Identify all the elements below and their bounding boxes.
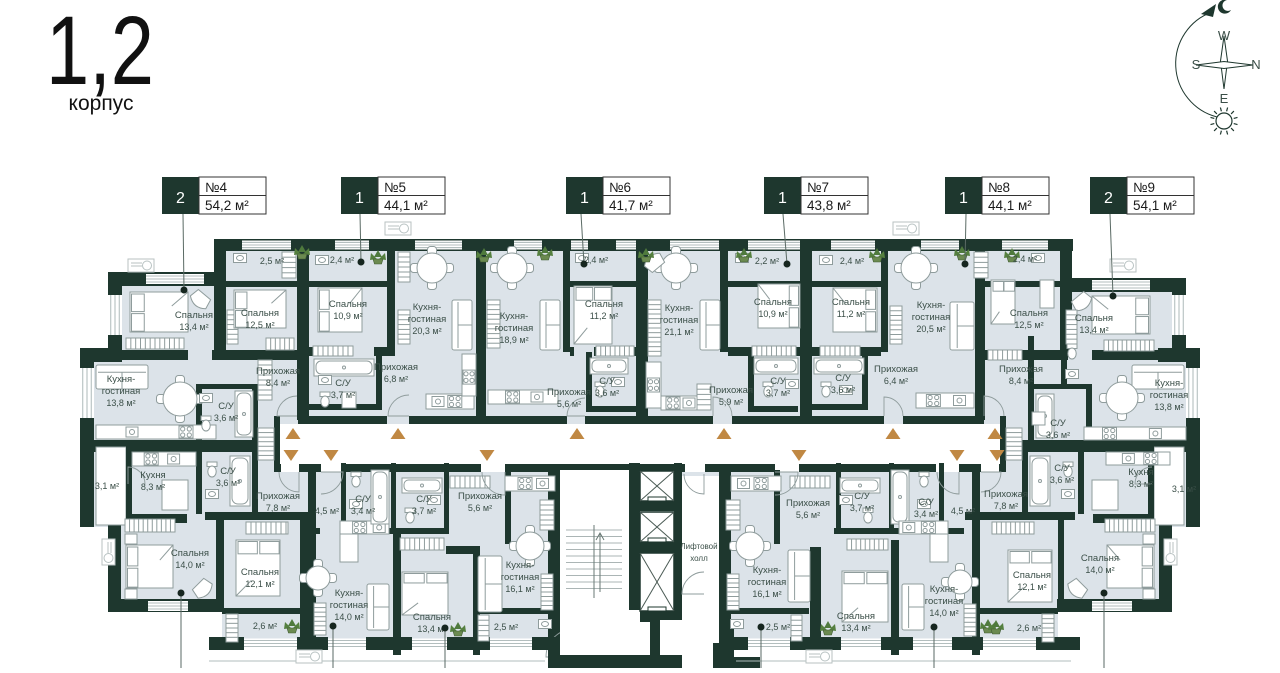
svg-text:54,1 м²: 54,1 м² bbox=[1133, 198, 1177, 213]
svg-text:3,6 м²: 3,6 м² bbox=[214, 413, 238, 423]
svg-text:Прихожая: Прихожая bbox=[984, 489, 1028, 500]
svg-text:1: 1 bbox=[580, 190, 589, 207]
svg-text:13,4 м²: 13,4 м² bbox=[1079, 325, 1108, 335]
svg-text:С/У: С/У bbox=[1050, 418, 1067, 429]
svg-text:18,9 м²: 18,9 м² bbox=[499, 335, 528, 345]
svg-text:С/У: С/У bbox=[335, 378, 352, 389]
svg-text:2,4 м²: 2,4 м² bbox=[330, 255, 354, 265]
svg-text:2: 2 bbox=[1104, 190, 1113, 207]
svg-text:11,2 м²: 11,2 м² bbox=[590, 311, 619, 321]
svg-text:№8: №8 bbox=[988, 180, 1010, 195]
svg-text:3,1 м²: 3,1 м² bbox=[1172, 484, 1196, 494]
svg-text:1,2: 1,2 bbox=[46, 0, 154, 105]
svg-text:Кухня-: Кухня- bbox=[1155, 378, 1184, 389]
svg-text:3,7 м²: 3,7 м² bbox=[766, 388, 790, 398]
svg-text:5,6 м²: 5,6 м² bbox=[796, 510, 820, 520]
svg-text:№9: №9 bbox=[1133, 180, 1155, 195]
svg-text:Кухня-: Кухня- bbox=[335, 588, 364, 599]
svg-text:Кухня-: Кухня- bbox=[753, 565, 782, 576]
svg-text:Спальня: Спальня bbox=[832, 297, 870, 308]
svg-text:Прихожая: Прихожая bbox=[547, 387, 591, 398]
svg-text:Спальня: Спальня bbox=[754, 297, 792, 308]
svg-text:Кухня-: Кухня- bbox=[930, 584, 959, 595]
svg-text:3,6 м²: 3,6 м² bbox=[216, 478, 240, 488]
svg-text:5,9 м²: 5,9 м² bbox=[719, 397, 743, 407]
svg-text:43,8 м²: 43,8 м² bbox=[807, 198, 851, 213]
svg-text:2,6 м²: 2,6 м² bbox=[253, 621, 277, 631]
svg-text:Прихожая: Прихожая bbox=[374, 362, 418, 373]
svg-text:7,8 м²: 7,8 м² bbox=[266, 503, 290, 513]
svg-text:2,4 м²: 2,4 м² bbox=[1013, 254, 1037, 264]
svg-text:Спальня: Спальня bbox=[175, 310, 213, 321]
svg-text:41,7 м²: 41,7 м² bbox=[609, 198, 653, 213]
svg-text:3,7 м²: 3,7 м² bbox=[850, 503, 874, 513]
svg-text:8,4 м²: 8,4 м² bbox=[1009, 376, 1033, 386]
svg-text:С/У: С/У bbox=[770, 376, 787, 387]
svg-text:№7: №7 bbox=[807, 180, 829, 195]
svg-text:Спальня: Спальня bbox=[1075, 313, 1113, 324]
svg-text:Спальня: Спальня bbox=[171, 548, 209, 559]
svg-text:21,1 м²: 21,1 м² bbox=[664, 327, 693, 337]
svg-text:2,5 м²: 2,5 м² bbox=[494, 622, 518, 632]
svg-text:12,5 м²: 12,5 м² bbox=[245, 320, 274, 330]
svg-text:3,7 м²: 3,7 м² bbox=[331, 390, 355, 400]
svg-text:гостиная: гостиная bbox=[660, 315, 699, 326]
svg-text:14,0 м²: 14,0 м² bbox=[175, 560, 204, 570]
svg-text:корпус: корпус bbox=[69, 92, 134, 115]
svg-text:8,3 м²: 8,3 м² bbox=[1129, 479, 1153, 489]
svg-text:Прихожая: Прихожая bbox=[256, 366, 300, 377]
svg-text:5,6 м²: 5,6 м² bbox=[468, 503, 492, 513]
svg-text:5,6 м²: 5,6 м² bbox=[557, 399, 581, 409]
svg-text:Кухня: Кухня bbox=[1128, 467, 1153, 478]
svg-text:13,4 м²: 13,4 м² bbox=[179, 322, 208, 332]
svg-text:гостиная: гостиная bbox=[748, 577, 787, 588]
svg-text:гостиная: гостиная bbox=[408, 314, 447, 325]
svg-text:6,8 м²: 6,8 м² bbox=[384, 374, 408, 384]
svg-text:С/У: С/У bbox=[416, 494, 433, 505]
svg-text:гостиная: гостиная bbox=[1150, 390, 1189, 401]
svg-text:Спальня: Спальня bbox=[241, 567, 279, 578]
svg-text:N: N bbox=[1251, 57, 1260, 72]
svg-text:2,2 м²: 2,2 м² bbox=[755, 256, 779, 266]
svg-text:Прихожая: Прихожая bbox=[256, 491, 300, 502]
svg-text:гостиная: гостиная bbox=[495, 323, 534, 334]
svg-text:С/У: С/У bbox=[355, 494, 372, 505]
svg-text:холл: холл bbox=[690, 554, 708, 563]
svg-text:14,0 м²: 14,0 м² bbox=[929, 608, 958, 618]
svg-text:С/У: С/У bbox=[599, 376, 616, 387]
svg-text:2,5 м²: 2,5 м² bbox=[766, 622, 790, 632]
svg-text:20,5 м²: 20,5 м² bbox=[916, 324, 945, 334]
svg-text:11,2 м²: 11,2 м² bbox=[837, 309, 866, 319]
svg-text:1: 1 bbox=[959, 190, 968, 207]
svg-text:14,0 м²: 14,0 м² bbox=[1085, 565, 1114, 575]
svg-text:Кухня-: Кухня- bbox=[413, 302, 442, 313]
svg-text:Кухня-: Кухня- bbox=[506, 560, 535, 571]
svg-text:6,4 м²: 6,4 м² bbox=[884, 376, 908, 386]
svg-text:4,5 м²: 4,5 м² bbox=[315, 506, 339, 516]
svg-text:Спальня: Спальня bbox=[413, 612, 451, 623]
svg-text:3,6 м²: 3,6 м² bbox=[831, 385, 855, 395]
svg-text:Спальня: Спальня bbox=[1081, 553, 1119, 564]
svg-text:С/У: С/У bbox=[220, 466, 237, 477]
svg-text:2,6 м²: 2,6 м² bbox=[1017, 623, 1041, 633]
svg-text:№5: №5 bbox=[384, 180, 406, 195]
svg-text:3,7 м²: 3,7 м² bbox=[412, 506, 436, 516]
svg-text:S: S bbox=[1192, 57, 1201, 72]
svg-text:Лифтовой: Лифтовой bbox=[680, 542, 717, 551]
svg-text:W: W bbox=[1218, 28, 1231, 43]
svg-text:С/У: С/У bbox=[854, 491, 871, 502]
svg-text:Спальня: Спальня bbox=[1013, 570, 1051, 581]
svg-text:16,1 м²: 16,1 м² bbox=[752, 589, 781, 599]
svg-text:54,2 м²: 54,2 м² bbox=[205, 198, 249, 213]
svg-text:44,1 м²: 44,1 м² bbox=[384, 198, 428, 213]
svg-text:3,6 м²: 3,6 м² bbox=[1046, 430, 1070, 440]
svg-text:3,4 м²: 3,4 м² bbox=[351, 506, 375, 516]
svg-text:гостиная: гостиная bbox=[925, 596, 964, 607]
svg-text:Прихожая: Прихожая bbox=[709, 385, 753, 396]
svg-text:13,8 м²: 13,8 м² bbox=[1154, 402, 1183, 412]
svg-text:8,3 м²: 8,3 м² bbox=[141, 482, 165, 492]
svg-text:Кухня-: Кухня- bbox=[500, 311, 529, 322]
svg-text:С/У: С/У bbox=[835, 373, 852, 384]
svg-text:20,3 м²: 20,3 м² bbox=[412, 326, 441, 336]
svg-text:16,1 м²: 16,1 м² bbox=[505, 584, 534, 594]
svg-text:Прихожая: Прихожая bbox=[874, 364, 918, 375]
svg-text:12,1 м²: 12,1 м² bbox=[245, 579, 274, 589]
svg-text:8,4 м²: 8,4 м² bbox=[266, 378, 290, 388]
svg-text:12,5 м²: 12,5 м² bbox=[1014, 320, 1043, 330]
svg-text:1: 1 bbox=[355, 190, 364, 207]
svg-text:Кухня-: Кухня- bbox=[917, 300, 946, 311]
svg-text:Кухня: Кухня bbox=[140, 470, 165, 481]
svg-text:10,9 м²: 10,9 м² bbox=[333, 311, 362, 321]
svg-text:№4: №4 bbox=[205, 180, 227, 195]
svg-text:гостиная: гостиная bbox=[102, 386, 141, 397]
svg-text:13,8 м²: 13,8 м² bbox=[106, 398, 135, 408]
svg-text:Спальня: Спальня bbox=[1010, 308, 1048, 319]
svg-text:Кухня-: Кухня- bbox=[107, 374, 136, 385]
svg-text:14,0 м²: 14,0 м² bbox=[334, 612, 363, 622]
svg-text:Спальня: Спальня bbox=[241, 308, 279, 319]
svg-text:С/У: С/У bbox=[218, 401, 235, 412]
svg-text:Спальня: Спальня bbox=[837, 611, 875, 622]
svg-text:13,4 м²: 13,4 м² bbox=[841, 623, 870, 633]
svg-text:гостиная: гостиная bbox=[501, 572, 540, 583]
svg-text:2,5 м²: 2,5 м² bbox=[260, 256, 284, 266]
svg-text:Прихожая: Прихожая bbox=[786, 498, 830, 509]
svg-text:2,4 м²: 2,4 м² bbox=[840, 256, 864, 266]
svg-text:3,6 м²: 3,6 м² bbox=[1050, 475, 1074, 485]
svg-text:Кухня-: Кухня- bbox=[665, 303, 694, 314]
svg-text:12,1 м²: 12,1 м² bbox=[1017, 582, 1046, 592]
svg-text:4,5 м²: 4,5 м² bbox=[951, 506, 975, 516]
svg-text:3,6 м²: 3,6 м² bbox=[595, 388, 619, 398]
svg-text:Спальня: Спальня bbox=[329, 299, 367, 310]
svg-text:№6: №6 bbox=[609, 180, 631, 195]
svg-text:7,8 м²: 7,8 м² bbox=[994, 501, 1018, 511]
svg-text:С/У: С/У bbox=[1054, 463, 1071, 474]
svg-text:E: E bbox=[1220, 91, 1229, 106]
svg-text:10,9 м²: 10,9 м² bbox=[758, 309, 787, 319]
svg-text:С/У: С/У bbox=[918, 497, 935, 508]
svg-text:Прихожая: Прихожая bbox=[999, 364, 1043, 375]
svg-text:2: 2 bbox=[176, 190, 185, 207]
svg-text:2,4 м²: 2,4 м² bbox=[584, 255, 608, 265]
svg-text:3,4 м²: 3,4 м² bbox=[914, 509, 938, 519]
svg-text:гостиная: гостиная bbox=[330, 600, 369, 611]
svg-text:Спальня: Спальня bbox=[585, 299, 623, 310]
svg-text:гостиная: гостиная bbox=[912, 312, 951, 323]
svg-text:Прихожая: Прихожая bbox=[458, 491, 502, 502]
svg-text:1: 1 bbox=[778, 190, 787, 207]
svg-text:3,1 м²: 3,1 м² bbox=[95, 481, 119, 491]
svg-text:44,1 м²: 44,1 м² bbox=[988, 198, 1032, 213]
